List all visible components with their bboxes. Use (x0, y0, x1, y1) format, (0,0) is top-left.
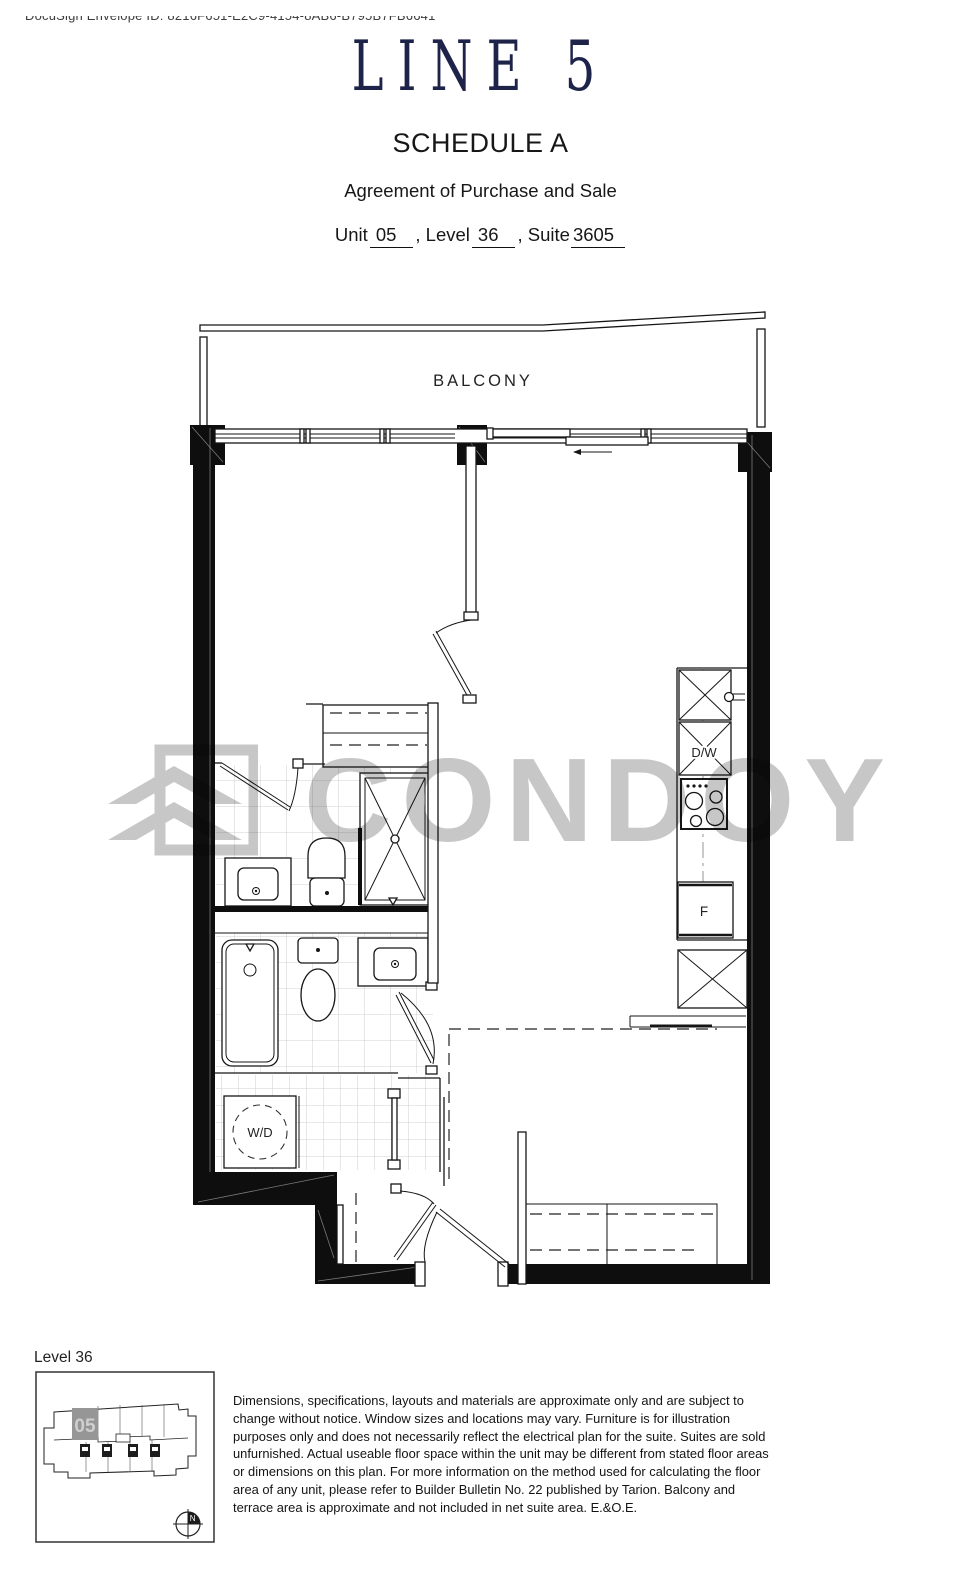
agreement-subtitle: Agreement of Purchase and Sale (0, 180, 961, 202)
disclaimer-text: Dimensions, specifications, layouts and … (233, 1392, 773, 1517)
unit-label: Unit (335, 224, 368, 245)
level-label: , Level (415, 224, 470, 245)
level-value: 36 (472, 224, 516, 248)
line5-logo: LINE 5 (0, 26, 961, 107)
entry (337, 1184, 509, 1267)
unit-value: 05 (370, 224, 414, 248)
shower (358, 773, 430, 905)
balcony: BALCONY (200, 312, 765, 427)
main-vanity (358, 938, 428, 986)
kitchen-sink (679, 670, 745, 720)
dishwasher-label: D/W (691, 745, 717, 760)
bathroom-partition-wall (428, 703, 438, 983)
bathtub (222, 940, 278, 1066)
suite-value: 3605 (571, 224, 625, 248)
washer-dryer-label: W/D (247, 1125, 272, 1140)
kitchen: D/W F (630, 668, 747, 1027)
compass-north-label: N (190, 1514, 196, 1523)
fridge: F (678, 882, 733, 938)
floorplan: BALCONY (185, 300, 777, 1300)
keyplan-building: 05 (44, 1404, 196, 1478)
schedule-title: SCHEDULE A (0, 128, 961, 159)
dishwasher: D/W (679, 722, 731, 775)
cooktop (681, 779, 727, 829)
keyplan-level-label: Level 36 (34, 1349, 93, 1366)
entry-coat-closet (518, 1132, 717, 1284)
document-page: DocuSign Envelope ID: 8216F651-E2C9-4154… (0, 0, 961, 1583)
ensuite-vanity (225, 858, 291, 906)
ensuite-toilet (308, 838, 345, 906)
suite-label: , Suite (517, 224, 569, 245)
docusign-envelope-text: DocuSign Envelope ID: 8216F651-E2C9-4154… (25, 16, 436, 23)
fridge-label: F (700, 904, 708, 919)
bedroom-closet (306, 704, 433, 767)
keyplan: Level 36 05 (28, 1344, 223, 1559)
unit-level-suite-line: Unit05, Level36, Suite3605 (0, 224, 961, 248)
balcony-label: BALCONY (433, 372, 533, 390)
kitchen-shaft (678, 950, 747, 1008)
keyplan-unit-label: 05 (74, 1416, 96, 1437)
main-toilet (298, 938, 338, 1021)
foyer-boundary (444, 1026, 717, 1186)
bedroom-wall (433, 446, 478, 703)
